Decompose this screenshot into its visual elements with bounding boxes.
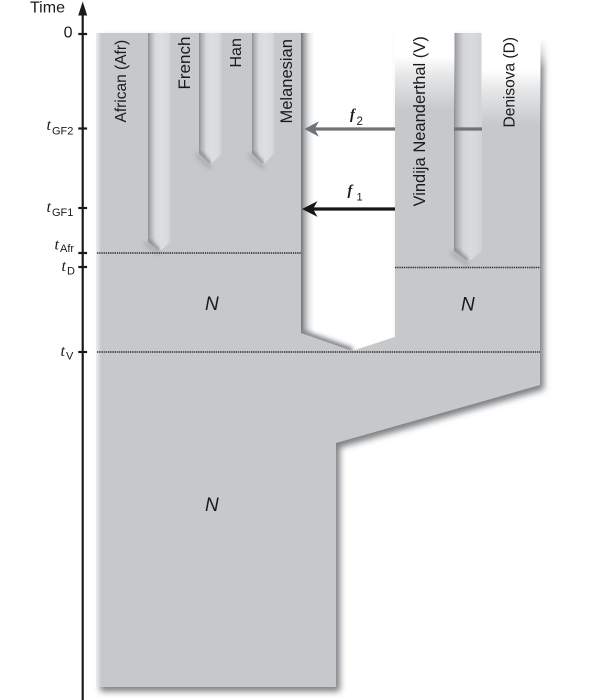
svg-text:French: French: [175, 37, 194, 90]
svg-text:t: t: [55, 237, 60, 254]
svg-text:N: N: [205, 294, 219, 315]
svg-text:N: N: [461, 295, 475, 316]
svg-text:GF1: GF1: [52, 207, 73, 219]
svg-text:African (Afr): African (Afr): [113, 40, 130, 123]
svg-text:Time: Time: [30, 0, 65, 17]
svg-text:Melanesian: Melanesian: [278, 39, 296, 123]
svg-text:t: t: [47, 199, 52, 216]
svg-text:f: f: [348, 183, 355, 199]
svg-text:N: N: [205, 495, 219, 516]
svg-text:t: t: [62, 258, 67, 275]
svg-text:D: D: [67, 266, 75, 278]
svg-text:V: V: [66, 351, 74, 363]
svg-text:0: 0: [64, 25, 73, 42]
svg-text:Denisova (D): Denisova (D): [502, 37, 519, 127]
svg-text:Afr: Afr: [60, 243, 74, 255]
svg-text:Han: Han: [228, 38, 245, 67]
svg-text:t: t: [61, 343, 66, 360]
svg-text:2: 2: [357, 116, 363, 128]
svg-text:Vindija Neanderthal (V): Vindija Neanderthal (V): [411, 36, 429, 206]
svg-text:t: t: [47, 117, 52, 134]
svg-text:GF2: GF2: [52, 126, 73, 138]
svg-text:1: 1: [357, 192, 363, 204]
